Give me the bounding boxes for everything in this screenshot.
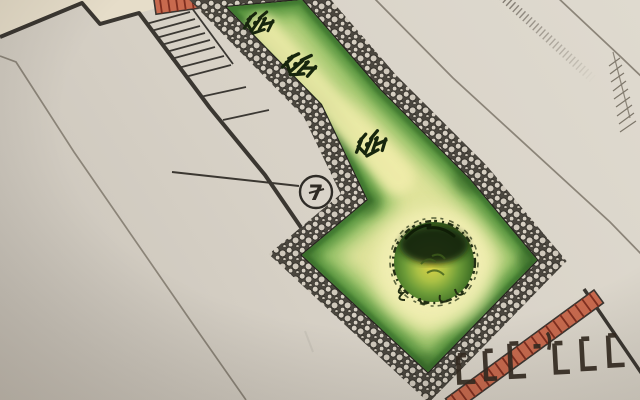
plan-drawing: 7: [0, 0, 640, 400]
photo-vignette: [0, 0, 640, 400]
plan-photo: 7: [0, 0, 640, 400]
